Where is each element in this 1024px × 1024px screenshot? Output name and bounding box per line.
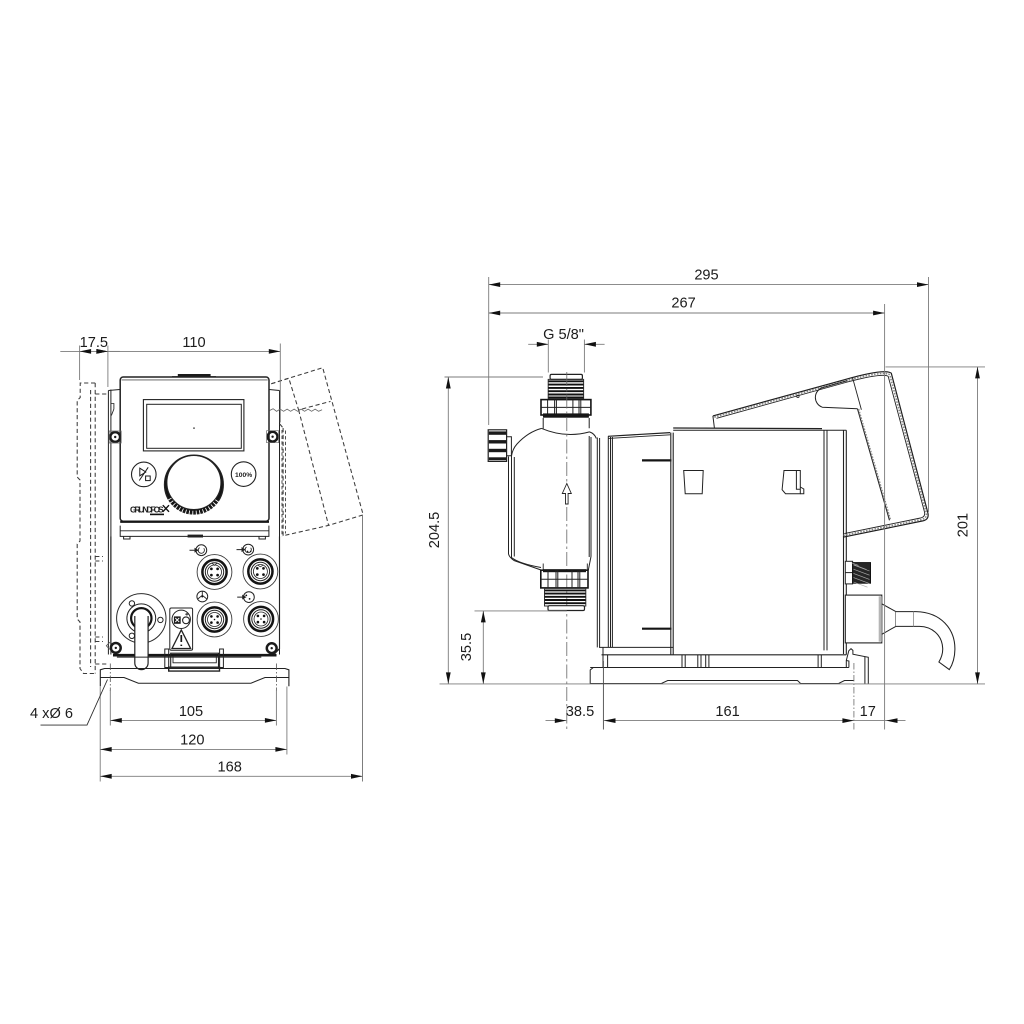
- svg-text:168: 168: [218, 760, 242, 776]
- svg-text:204.5: 204.5: [427, 512, 443, 549]
- svg-text:100%: 100%: [235, 472, 252, 479]
- svg-text:4 xØ 6: 4 xØ 6: [30, 706, 73, 722]
- svg-text:G 5/8": G 5/8": [543, 327, 584, 343]
- svg-text:110: 110: [182, 335, 205, 351]
- svg-text:17.5: 17.5: [80, 335, 108, 351]
- svg-text:120: 120: [180, 733, 204, 749]
- svg-text:17: 17: [860, 704, 876, 720]
- svg-text:161: 161: [715, 704, 739, 720]
- svg-text:201: 201: [955, 513, 971, 537]
- svg-text:267: 267: [671, 296, 695, 312]
- svg-text:295: 295: [694, 267, 718, 283]
- svg-text:35.5: 35.5: [459, 633, 475, 661]
- svg-text:38.5: 38.5: [566, 704, 594, 720]
- svg-text:105: 105: [179, 704, 203, 720]
- svg-text:GRUNDFOS: GRUNDFOS: [130, 505, 164, 514]
